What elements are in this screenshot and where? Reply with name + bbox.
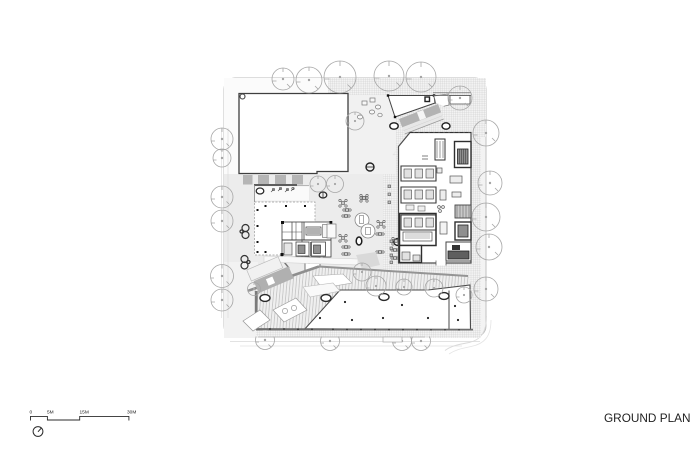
- svg-text:30M: 30M: [127, 410, 136, 416]
- svg-text:0: 0: [30, 410, 33, 416]
- svg-text:5M: 5M: [47, 410, 54, 416]
- svg-text:GROUND PLAN: GROUND PLAN: [604, 411, 691, 425]
- svg-text:15M: 15M: [80, 410, 89, 416]
